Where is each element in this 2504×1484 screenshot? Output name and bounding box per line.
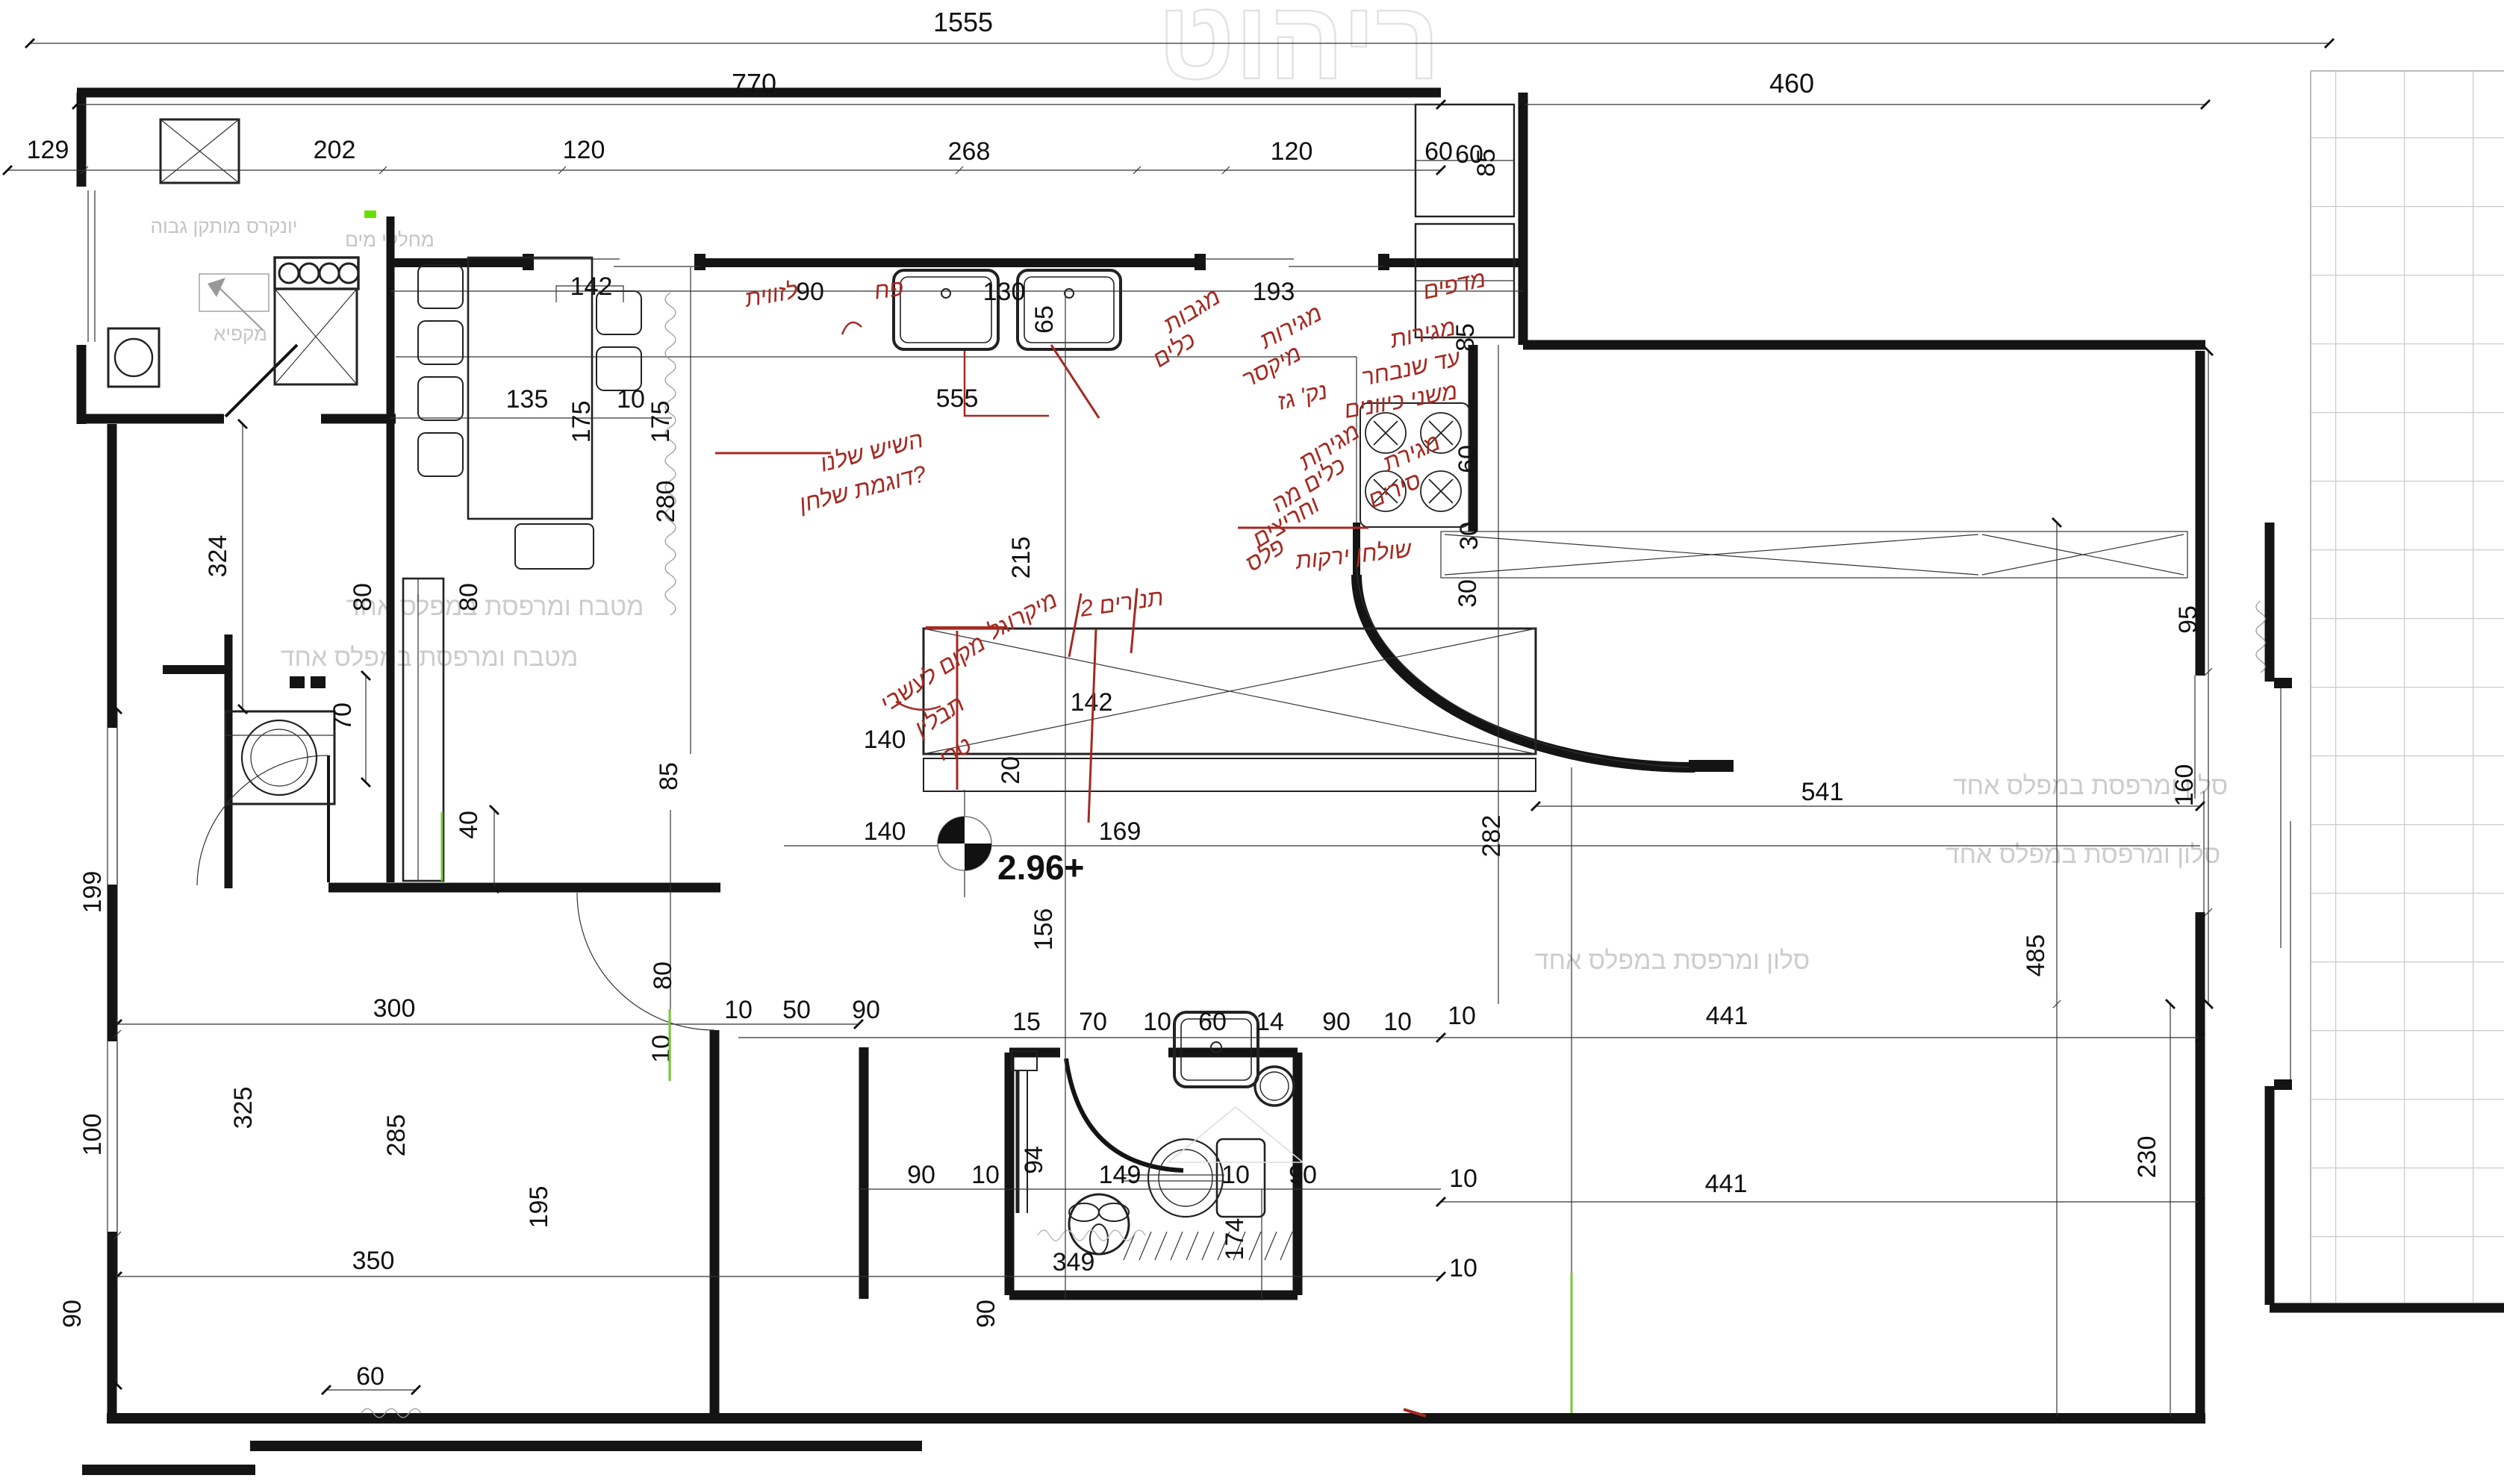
window-left-room-1 [108, 728, 117, 885]
dim-label: 60 [1424, 137, 1453, 166]
dim-label: 193 [1253, 278, 1295, 306]
dim-label: 441 [1706, 1002, 1748, 1030]
dim-label: 129 [27, 136, 69, 164]
chair [418, 321, 463, 364]
red-note: 2 תנורים [1077, 584, 1165, 621]
dim-label: 142 [570, 272, 613, 301]
dim-label: 85 [655, 762, 683, 791]
door-swing-arc [197, 755, 328, 885]
dim-label: 120 [1271, 137, 1313, 166]
dim-label: 90 [1322, 1008, 1351, 1036]
dim-label: 149 [1099, 1161, 1142, 1189]
dim-label: 174 [1221, 1218, 1249, 1261]
dim-label: 90 [907, 1161, 935, 1189]
floor-plan-page: ריהוט יונקרס מותקן גבוה מחלקי מים מקפיא … [0, 0, 2504, 1484]
window-left-top [88, 190, 95, 342]
dim-label: 120 [563, 136, 605, 164]
window-kitchen-1 [532, 259, 700, 266]
dim-label: 325 [229, 1087, 258, 1129]
dim-label: 60 [1454, 445, 1482, 473]
dim-label: 14 [1256, 1008, 1284, 1036]
kitchen-fixtures [396, 105, 1536, 881]
dim-label: 268 [948, 137, 991, 166]
dim-label: 80 [649, 961, 677, 990]
dim-label: 142 [1071, 688, 1113, 717]
faucet-hole-icon [1065, 289, 1074, 298]
dim-label: 70 [1079, 1008, 1107, 1036]
watermark-room: מטבח ומרפסת במפלס אחד [281, 643, 579, 672]
dim-label: 140 [864, 726, 906, 754]
dim-label: 50 [782, 996, 811, 1024]
chair [418, 265, 463, 308]
dim-label: 10 [647, 1035, 676, 1063]
dim-label: 324 [204, 535, 232, 578]
dim-label: 280 [652, 481, 680, 523]
red-note: פח [873, 275, 906, 305]
dim-label: 140 [864, 817, 906, 846]
red-note: לזווית [742, 277, 800, 312]
floor-plan-drawing: ריהוט יונקרס מותקן גבוה מחלקי מים מקפיא … [0, 0, 2504, 1484]
dim-label: 230 [2133, 1136, 2161, 1179]
dim-label: 30 [1454, 579, 1482, 608]
dim-label: 40 [455, 811, 483, 839]
dim-label: 175 [567, 401, 596, 443]
dim-label: 80 [349, 583, 377, 611]
dim-label: 80 [455, 583, 483, 611]
watermark-room: סלון ומרפסת במפלס אחד [1946, 841, 2220, 869]
stair-hatch [1124, 1232, 1292, 1260]
dim-label: 10 [1449, 1254, 1477, 1282]
pantry-cabinet [403, 579, 443, 881]
dim-label: 199 [78, 871, 107, 914]
dim-label: 350 [352, 1247, 395, 1275]
dim-label: 10 [971, 1161, 1000, 1189]
dim-label: 130 [983, 278, 1026, 306]
balcony-tile-floor [2311, 71, 2504, 1303]
red-note: מיקרוגל [982, 587, 1062, 645]
dim-label: 10 [1383, 1008, 1412, 1036]
chair [418, 377, 463, 420]
red-note: משני כיוונים [1342, 378, 1460, 423]
arrow-icon [208, 278, 225, 297]
dim-label: 555 [936, 384, 979, 413]
dim-label: 90 [796, 278, 824, 306]
dim-label: 156 [1030, 908, 1058, 951]
dim-label: 20 [997, 756, 1025, 785]
dim-label: 215 [1007, 537, 1035, 579]
red-note: מדפים [1421, 266, 1488, 305]
dim-label: 175 [647, 401, 675, 443]
chair [515, 524, 594, 569]
dim-label: 135 [506, 385, 549, 414]
dim-label: 15 [1012, 1008, 1041, 1036]
watermark-room: סלון ומרפסת במפלס אחד [1535, 947, 1810, 975]
dim-label: 95 [2174, 605, 2202, 634]
dim-label: 60 [356, 1362, 384, 1391]
dim-label: 770 [732, 68, 776, 99]
closet-band [1441, 531, 2187, 578]
dim-label: 90 [58, 1300, 87, 1328]
watermark-logo: ריהוט [1158, 0, 1441, 102]
stair-step-wall [250, 1441, 922, 1451]
dimension-labels: 1555 770 460 129 202 120 268 120 60 142 … [27, 7, 2202, 1391]
fan-icon [1069, 1194, 1129, 1254]
dim-label: 300 [373, 994, 416, 1023]
dim-label: 30 [1455, 522, 1483, 550]
dim-label: 65 [1030, 305, 1059, 334]
elevation-label: 2.96+ [997, 848, 1084, 887]
dim-label: 202 [314, 136, 356, 164]
dim-label: 460 [1769, 68, 1814, 99]
faint-guideline [1168, 1107, 1303, 1162]
red-note: טרי [934, 732, 977, 772]
dim-label: 195 [525, 1186, 553, 1229]
window-left-room-2 [108, 1041, 117, 1232]
dim-label: 10 [1221, 1161, 1250, 1189]
dim-label: 60 [1198, 1008, 1227, 1036]
dim-label: 10 [724, 996, 753, 1024]
chair [418, 433, 463, 476]
dim-label: 90 [972, 1300, 1000, 1328]
watermark-note: יונקרס מותקן גבוה [151, 215, 298, 237]
red-note: דוגמת שלחן? [796, 461, 929, 517]
dim-label: 1555 [933, 7, 993, 37]
chair [597, 347, 641, 390]
dim-label: 90 [852, 996, 880, 1024]
bathroom-door-arc [1066, 1059, 1183, 1170]
faucet-hole-icon [941, 289, 950, 298]
dim-label: 10 [1143, 1008, 1171, 1036]
elevation-marker: 2.96+ [938, 790, 1084, 897]
dim-label: 349 [1053, 1248, 1095, 1276]
balcony-sliding-door [2281, 687, 2290, 1082]
dim-label: 100 [78, 1114, 107, 1156]
red-note: נק' גז [1275, 378, 1330, 415]
dim-label: 485 [2022, 935, 2050, 977]
red-note: כלים [1147, 326, 1200, 372]
shelf-unit [199, 274, 269, 311]
dim-label: 285 [382, 1114, 411, 1157]
dim-label: 541 [1801, 778, 1844, 806]
water-point-icon [1255, 1067, 1294, 1106]
dim-label: 10 [617, 385, 645, 414]
stair-step-wall [82, 1465, 255, 1475]
dim-label: 90 [1289, 1161, 1317, 1189]
dim-label: 169 [1099, 817, 1142, 846]
window-kitchen-2 [1204, 259, 1383, 266]
gas-meter-icon [275, 258, 358, 289]
dim-label: 282 [1477, 815, 1506, 858]
washing-machine [225, 676, 334, 804]
dim-label: 85 [1472, 149, 1501, 177]
dim-label: 441 [1705, 1170, 1748, 1198]
dim-label: 10 [1449, 1165, 1477, 1193]
dim-label: 70 [328, 702, 357, 731]
dim-label: 160 [2170, 764, 2199, 807]
dim-label: 94 [1020, 1146, 1048, 1174]
dim-label: 10 [1448, 1002, 1476, 1030]
